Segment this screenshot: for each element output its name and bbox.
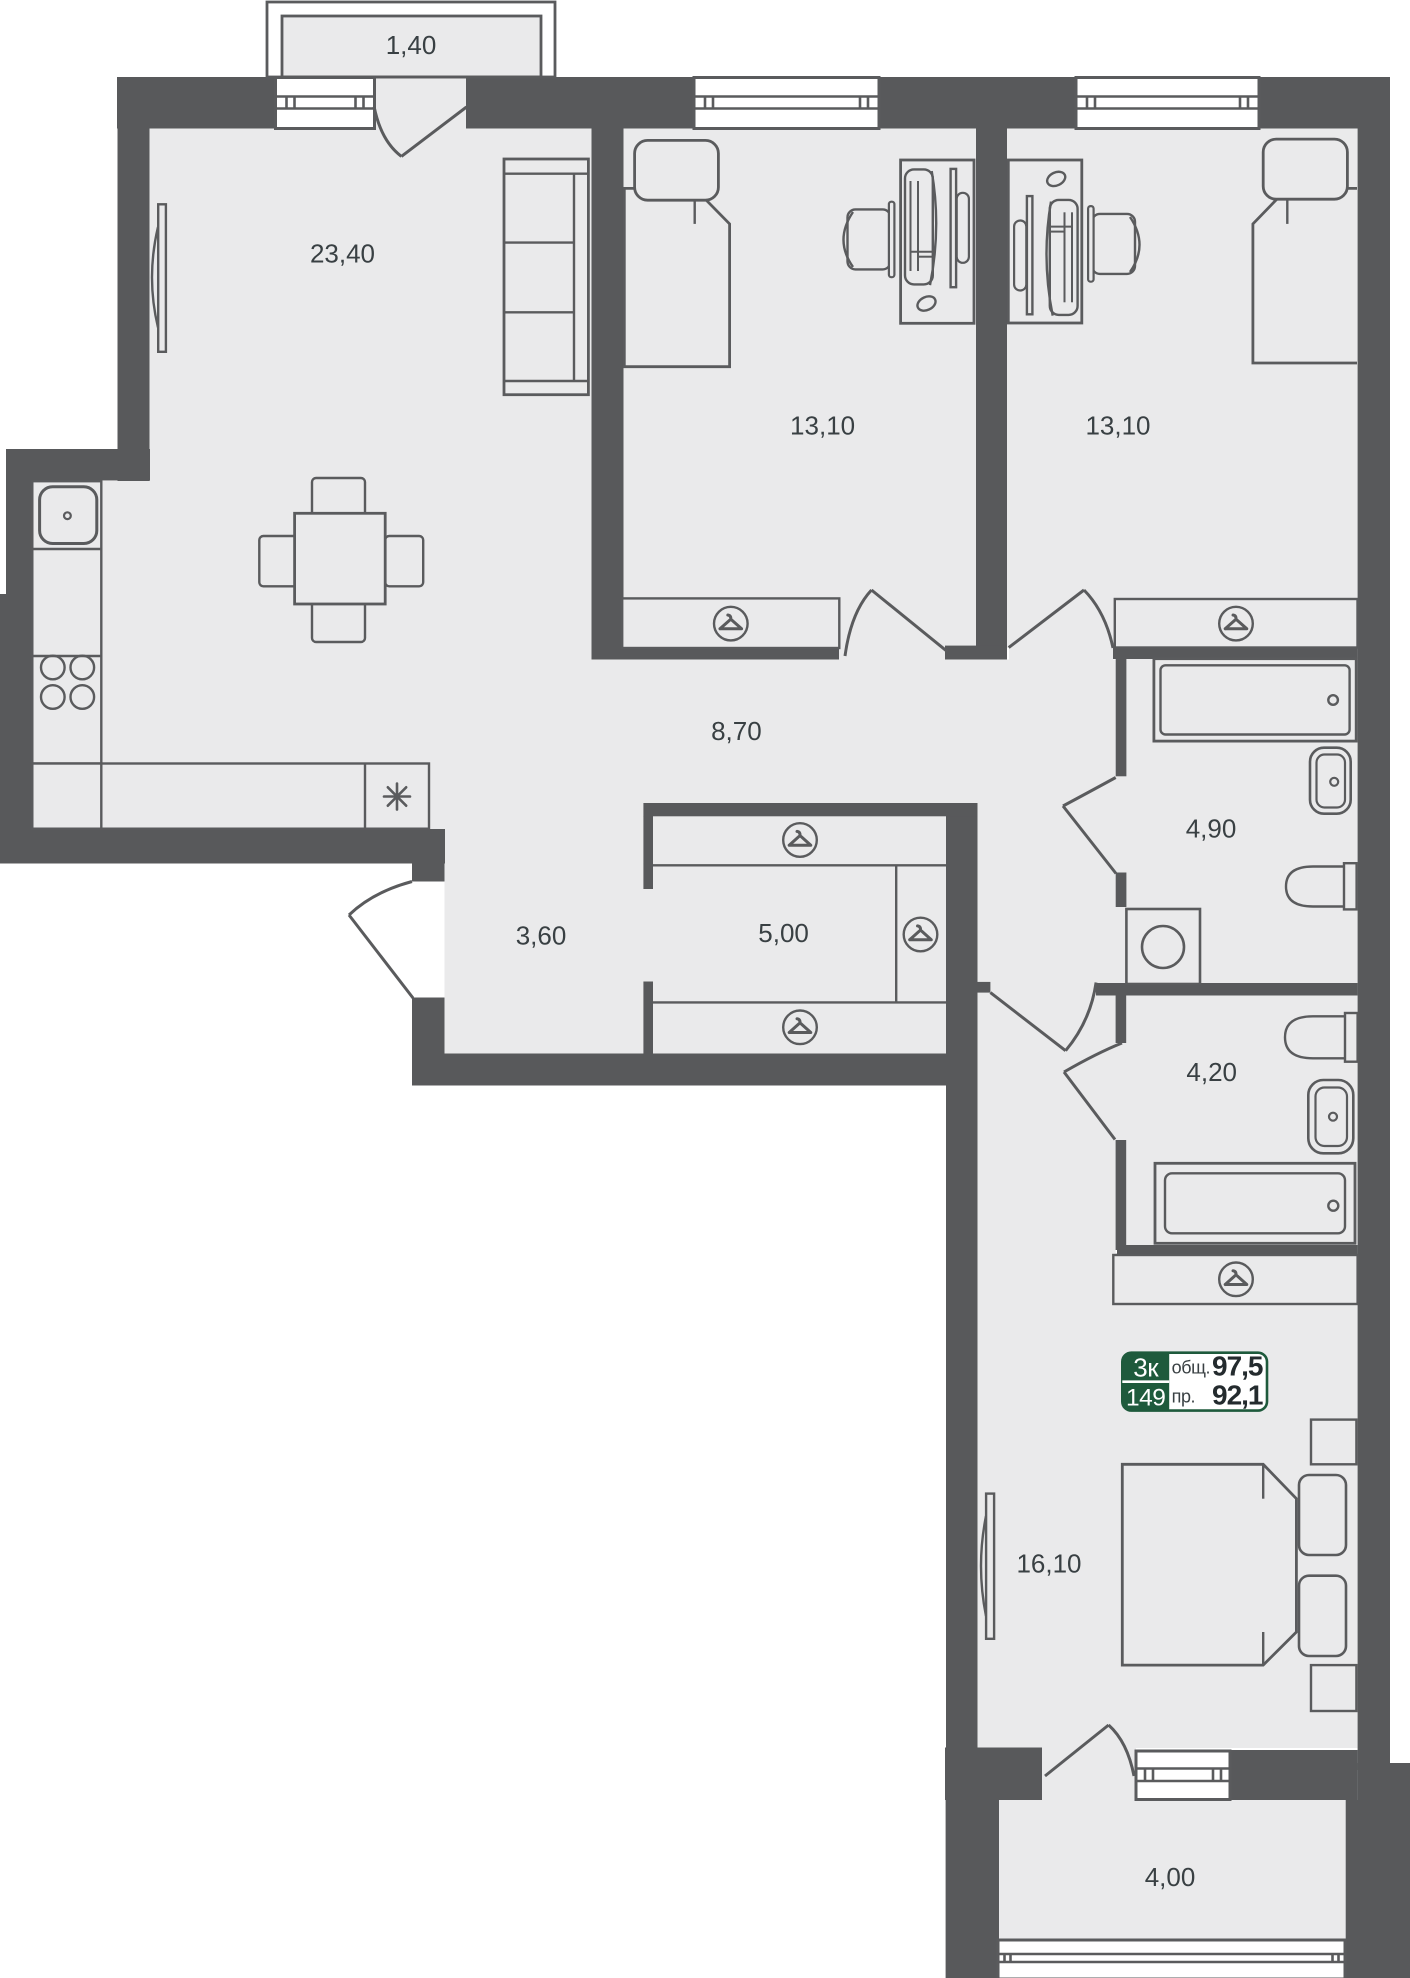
svg-text:3,60: 3,60	[516, 921, 567, 951]
svg-text:3к: 3к	[1133, 1353, 1159, 1383]
svg-text:пр.: пр.	[1172, 1387, 1196, 1407]
svg-text:1,40: 1,40	[386, 30, 437, 60]
svg-text:5,00: 5,00	[758, 918, 809, 948]
svg-text:149: 149	[1126, 1385, 1165, 1412]
svg-text:4,00: 4,00	[1145, 1862, 1196, 1892]
svg-text:4,90: 4,90	[1186, 814, 1237, 844]
svg-text:92,1: 92,1	[1212, 1380, 1263, 1411]
svg-text:23,40: 23,40	[310, 239, 375, 269]
svg-text:16,10: 16,10	[1016, 1549, 1081, 1579]
svg-text:8,70: 8,70	[711, 716, 762, 746]
svg-text:13,10: 13,10	[790, 411, 855, 441]
svg-text:4,20: 4,20	[1186, 1057, 1237, 1087]
svg-text:13,10: 13,10	[1085, 411, 1150, 441]
svg-text:общ.: общ.	[1172, 1358, 1211, 1378]
svg-text:97,5: 97,5	[1212, 1351, 1263, 1382]
